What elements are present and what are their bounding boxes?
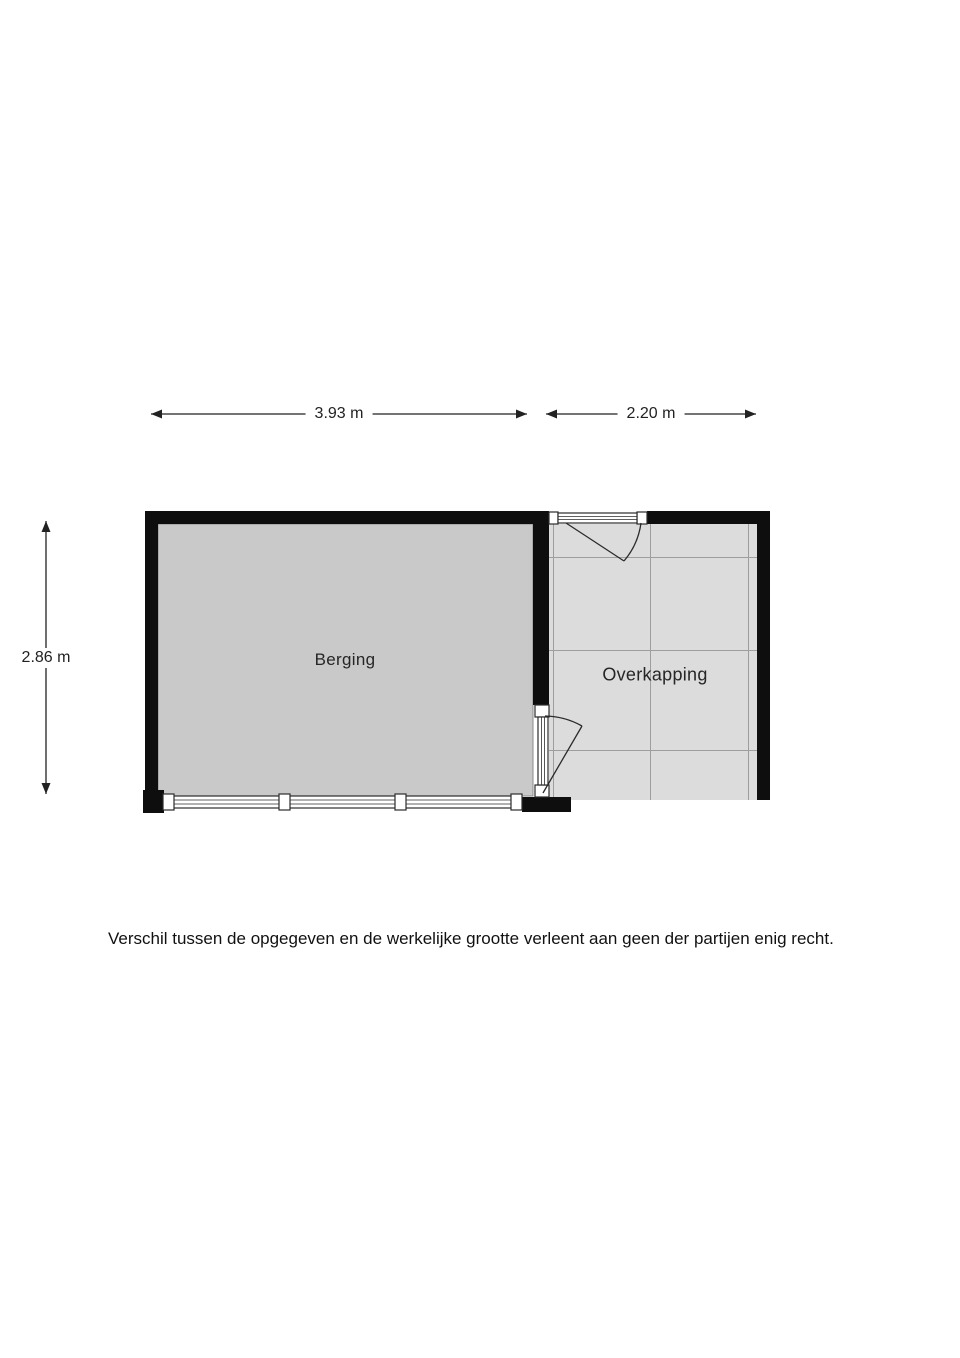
room-label-berging: Berging	[315, 650, 376, 670]
door-jamb	[535, 705, 549, 717]
floorplan-page: 3.93 m 2.20 m 2.86 m Berging Overkapping…	[0, 0, 960, 1358]
floor-plan	[0, 0, 960, 1358]
wall-top-right-segment	[647, 511, 770, 524]
corner-post-bottom-middle	[522, 797, 571, 812]
window-strip	[163, 794, 522, 810]
wall-middle	[533, 511, 549, 705]
dimension-label-berging-width: 3.93 m	[306, 404, 373, 424]
wall-left	[145, 511, 158, 793]
corner-post-bottom-left	[143, 790, 164, 813]
door-jamb	[549, 512, 558, 524]
room-label-overkapping: Overkapping	[602, 665, 707, 686]
overkapping-floor	[549, 524, 757, 800]
wall-right	[757, 511, 770, 800]
door-jamb	[637, 512, 647, 524]
door-panel	[558, 513, 637, 523]
dimension-label-plan-height: 2.86 m	[13, 648, 80, 668]
dimension-label-overkapping-width: 2.20 m	[618, 404, 685, 424]
door-panel	[538, 717, 548, 785]
wall-top-left-segment	[145, 511, 549, 524]
disclaimer-text: Verschil tussen de opgegeven en de werke…	[108, 929, 834, 949]
